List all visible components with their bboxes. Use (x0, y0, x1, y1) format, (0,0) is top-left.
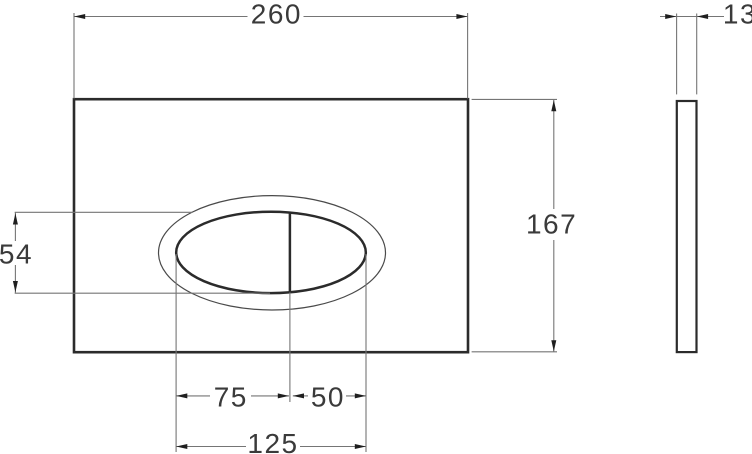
svg-text:13: 13 (723, 0, 752, 30)
svg-text:260: 260 (251, 0, 302, 30)
svg-text:54: 54 (0, 238, 33, 269)
svg-text:75: 75 (214, 382, 248, 413)
svg-text:125: 125 (247, 428, 298, 454)
svg-text:50: 50 (311, 382, 345, 413)
svg-text:167: 167 (526, 209, 577, 240)
